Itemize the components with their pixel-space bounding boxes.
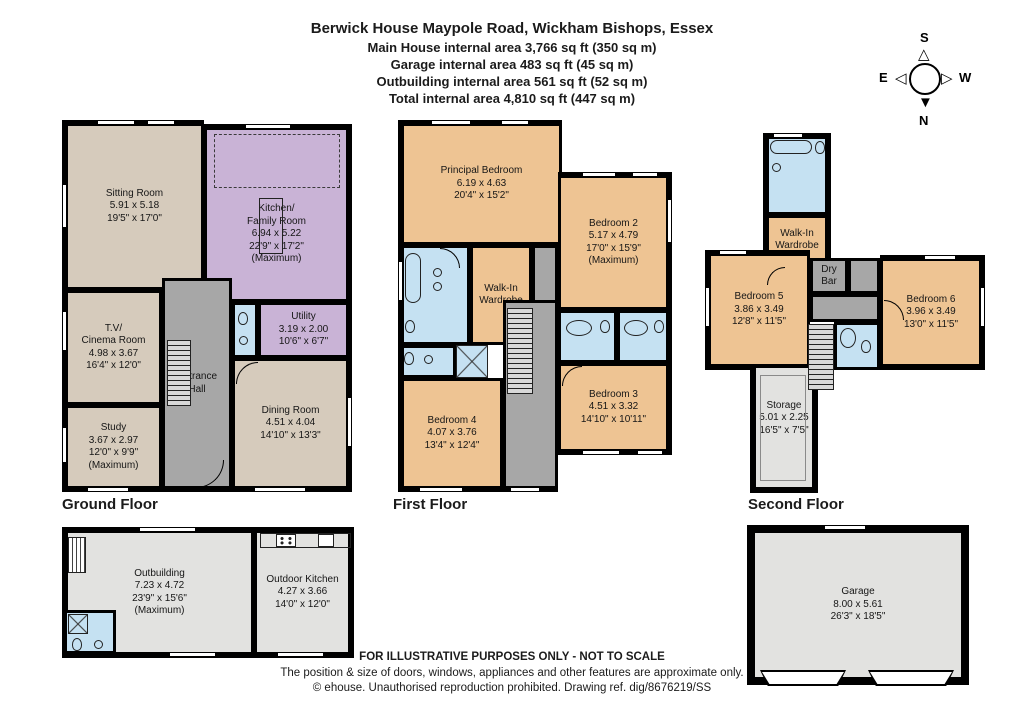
toilet-icon — [405, 320, 415, 333]
window — [633, 172, 657, 177]
room-note: (Maximum) — [586, 255, 641, 268]
window — [398, 262, 403, 300]
room-dims-m: 8.00 x 5.61 — [831, 599, 886, 612]
window — [148, 120, 174, 125]
room-name: Bedroom 5 — [732, 291, 786, 304]
room-name: Outdoor Kitchen — [266, 574, 338, 587]
window — [88, 487, 128, 492]
room-name: Principal Bedroom — [441, 165, 523, 178]
room-name: Garage — [831, 586, 886, 599]
compass-circle — [909, 63, 941, 95]
window — [62, 428, 67, 462]
room-label: Dry Bar — [816, 264, 842, 289]
room-label: Dining Room 4.51 x 4.04 14'10" x 13'3" — [260, 405, 320, 443]
window — [511, 487, 539, 492]
room-label: Walk-In Wardrobe — [769, 228, 825, 253]
room-dims-m: 7.23 x 4.72 — [132, 580, 187, 593]
window — [502, 120, 528, 125]
room-study: Study 3.67 x 2.97 12'0" x 9'9" (Maximum) — [62, 405, 162, 492]
shower-icon — [68, 614, 88, 634]
room-note: (Maximum) — [247, 253, 306, 266]
room-dims-ft: 20'4" x 15'2" — [441, 190, 523, 203]
window — [62, 312, 67, 350]
room-name: Bedroom 2 — [586, 218, 641, 231]
floorplan-page: Berwick House Maypole Road, Wickham Bish… — [0, 0, 1024, 724]
stairs — [808, 324, 834, 390]
room-label: Bedroom 2 5.17 x 4.79 17'0" x 15'9" (Max… — [586, 218, 641, 268]
window — [774, 133, 802, 138]
kitchen-island — [259, 198, 283, 254]
room-dims-m: 4.51 x 4.04 — [260, 417, 320, 430]
room-dims-m: 5.91 x 5.18 — [106, 200, 163, 213]
room-name: Dining Room — [260, 405, 320, 418]
room-note: (Maximum) — [89, 460, 139, 473]
window — [255, 487, 305, 492]
compass-south-label: S — [920, 30, 929, 45]
window — [825, 525, 865, 530]
room-name: Outbuilding — [132, 568, 187, 581]
landing-corridor — [810, 294, 880, 322]
room-name: Bedroom 4 — [425, 415, 480, 428]
room-bedroom-4: Bedroom 4 4.07 x 3.76 13'4" x 12'4" — [398, 378, 503, 492]
room-bedroom-5: Bedroom 5 3.86 x 3.49 12'8" x 11'5" — [705, 250, 810, 370]
compass-south-arrow-icon: △ — [918, 47, 930, 62]
sink-icon — [772, 163, 781, 172]
sink-icon — [433, 268, 442, 277]
compass-east-label: E — [879, 70, 888, 85]
window — [246, 124, 290, 129]
window — [583, 450, 619, 455]
room-dims-m: 4.51 x 3.32 — [581, 401, 646, 414]
room-dims-m: 3.67 x 2.97 — [89, 435, 139, 448]
area-garage: Garage internal area 483 sq ft (45 sq m) — [0, 56, 1024, 73]
room-bedroom-2: Bedroom 2 5.17 x 4.79 17'0" x 15'9" (Max… — [558, 172, 672, 310]
window — [420, 487, 462, 492]
bathtub-icon — [405, 253, 421, 303]
sink-icon — [94, 640, 103, 649]
footer-approximation-note: The position & size of doors, windows, a… — [0, 667, 1024, 679]
bathtub-icon — [624, 320, 648, 336]
window — [980, 288, 985, 326]
room-dims-ft: 14'10" x 10'11" — [581, 414, 646, 427]
room-name-2: Cinema Room — [82, 335, 146, 348]
room-label: Outdoor Kitchen 4.27 x 3.66 14'0" x 12'0… — [266, 574, 338, 612]
room-label: Bedroom 3 4.51 x 3.32 14'10" x 10'11" — [581, 389, 646, 427]
room-dims-m: 6.19 x 4.63 — [441, 178, 523, 191]
room-name: Sitting Room — [106, 188, 163, 201]
toilet-icon — [600, 320, 610, 333]
room-name: Bedroom 3 — [581, 389, 646, 402]
compass-west-arrow-icon: ▷ — [941, 71, 953, 86]
hob-icon — [276, 534, 296, 547]
sink-icon — [424, 355, 433, 364]
footer-copyright: © ehouse. Unauthorised reproduction proh… — [0, 682, 1024, 694]
room-dims-m: 3.19 x 2.00 — [279, 324, 328, 337]
window — [638, 450, 662, 455]
room-label: Utility 3.19 x 2.00 10'6" x 6'7" — [279, 311, 328, 349]
area-total: Total internal area 4,810 sq ft (447 sq … — [0, 90, 1024, 107]
window — [98, 120, 134, 125]
toilet-icon — [861, 340, 871, 353]
room-dry-bar: Dry Bar — [810, 258, 848, 294]
second-floor-label: Second Floor — [748, 496, 844, 513]
room-label: Outbuilding 7.23 x 4.72 23'9" x 15'6" (M… — [132, 568, 187, 618]
room-label: Sitting Room 5.91 x 5.18 19'5" x 17'0" — [106, 188, 163, 226]
area-outbuilding: Outbuilding internal area 561 sq ft (52 … — [0, 73, 1024, 90]
room-dims-m: 5.17 x 4.79 — [586, 230, 641, 243]
window — [432, 120, 470, 125]
stairs — [167, 340, 191, 406]
toilet-icon — [238, 312, 248, 325]
room-dims-ft: 26'3" x 18'5" — [831, 611, 886, 624]
room-tv-cinema-room: T.V/ Cinema Room 4.98 x 3.67 16'4" x 12'… — [62, 290, 162, 405]
window — [667, 200, 672, 242]
compass-north-arrow-icon: ▼ — [918, 95, 933, 110]
room-name: T.V/ — [82, 323, 146, 336]
room-dims-ft: 19'5" x 17'0" — [106, 213, 163, 226]
room-sitting-room: Sitting Room 5.91 x 5.18 19'5" x 17'0" — [62, 120, 204, 290]
area-main-house: Main House internal area 3,766 sq ft (35… — [0, 39, 1024, 56]
window — [925, 255, 955, 260]
room-name: Bedroom 6 — [904, 294, 958, 307]
room-shower-room-second — [834, 322, 880, 370]
room-dims-ft: 12'0" x 9'9" — [89, 447, 139, 460]
room-dims-ft: 17'0" x 15'9" — [586, 243, 641, 256]
room-label: Bedroom 6 3.96 x 3.49 13'0" x 11'5" — [904, 294, 958, 332]
room-principal-bedroom: Principal Bedroom 6.19 x 4.63 20'4" x 15… — [398, 120, 562, 245]
window — [705, 288, 710, 326]
appliance-unit — [68, 537, 86, 573]
kitchen-counter — [260, 533, 351, 548]
reduced-headroom-line — [760, 375, 806, 481]
bathtub-icon — [566, 320, 592, 336]
room-utility: Utility 3.19 x 2.00 10'6" x 6'7" — [258, 302, 352, 358]
sink-icon — [318, 534, 334, 547]
toilet-icon — [404, 352, 414, 365]
room-dims-ft: 23'9" x 15'6" — [132, 593, 187, 606]
header: Berwick House Maypole Road, Wickham Bish… — [0, 20, 1024, 107]
footer-disclaimer: FOR ILLUSTRATIVE PURPOSES ONLY - NOT TO … — [0, 651, 1024, 663]
first-floor-label: First Floor — [393, 496, 467, 513]
room-dims-ft: 14'10" x 13'3" — [260, 430, 320, 443]
room-dims-m: 3.96 x 3.49 — [904, 306, 958, 319]
room-dims-m: 4.27 x 3.66 — [266, 586, 338, 599]
sink-icon — [239, 336, 248, 345]
compass-east-arrow-icon: ◁ — [895, 71, 907, 86]
room-dims-ft: 14'0" x 12'0" — [266, 599, 338, 612]
window — [140, 527, 195, 532]
bathtub-icon — [770, 140, 812, 154]
window — [347, 398, 352, 446]
room-dims-ft: 12'8" x 11'5" — [732, 316, 786, 329]
room-wc — [232, 302, 258, 358]
room-bathroom — [617, 310, 672, 363]
window — [62, 185, 67, 227]
room-dims-ft: 16'4" x 12'0" — [82, 360, 146, 373]
vaulted-ceiling-dashed-area — [214, 134, 340, 188]
room-dims-m: 4.07 x 3.76 — [425, 427, 480, 440]
room-name: Utility — [279, 311, 328, 324]
toilet-icon — [815, 141, 825, 154]
room-note: (Maximum) — [132, 605, 187, 618]
shower-icon — [456, 345, 488, 378]
toilet-icon — [654, 320, 664, 333]
room-name: Study — [89, 422, 139, 435]
room-label: Bedroom 5 3.86 x 3.49 12'8" x 11'5" — [732, 291, 786, 329]
room-label: Principal Bedroom 6.19 x 4.63 20'4" x 15… — [441, 165, 523, 203]
room-name: Dry Bar — [816, 264, 842, 289]
room-bathroom — [558, 310, 617, 363]
stairs — [507, 308, 533, 394]
compass-west-label: W — [959, 70, 971, 85]
room-label: Garage 8.00 x 5.61 26'3" x 18'5" — [831, 586, 886, 624]
room-dims-ft: 13'0" x 11'5" — [904, 319, 958, 332]
landing-corridor — [848, 258, 880, 294]
compass-north-label: N — [919, 113, 928, 128]
window — [583, 172, 615, 177]
shower-icon — [840, 328, 856, 348]
sink-icon — [433, 282, 442, 291]
room-label: Bedroom 4 4.07 x 3.76 13'4" x 12'4" — [425, 415, 480, 453]
room-label: Study 3.67 x 2.97 12'0" x 9'9" (Maximum) — [89, 422, 139, 472]
page-title: Berwick House Maypole Road, Wickham Bish… — [0, 20, 1024, 37]
window — [720, 250, 746, 255]
room-label: T.V/ Cinema Room 4.98 x 3.67 16'4" x 12'… — [82, 323, 146, 373]
room-name: Walk-In Wardrobe — [769, 228, 825, 253]
room-dims-m: 4.98 x 3.67 — [82, 348, 146, 361]
ground-floor-label: Ground Floor — [62, 496, 158, 513]
room-dims-m: 3.86 x 3.49 — [732, 304, 786, 317]
toilet-icon — [72, 638, 82, 651]
room-dims-ft: 10'6" x 6'7" — [279, 336, 328, 349]
room-dims-ft: 13'4" x 12'4" — [425, 440, 480, 453]
